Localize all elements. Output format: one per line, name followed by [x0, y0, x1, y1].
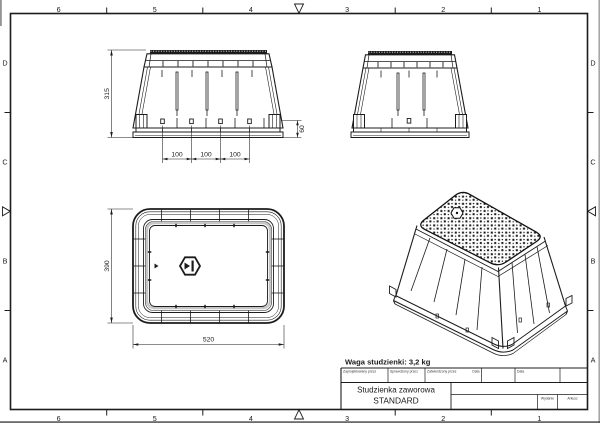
zone-label-top: 4: [249, 5, 253, 14]
front-view: 315 60 100 100: [104, 50, 306, 163]
front-base: [133, 128, 283, 138]
product-title-line1: Studzienka zaworowa: [357, 386, 435, 395]
side-rim: [363, 55, 457, 68]
date-label-1: Data: [472, 370, 479, 374]
dim-front-base-height: 60: [281, 121, 306, 138]
photo-edge-artifacts: [0, 0, 600, 423]
dim-text-315: 315: [104, 88, 111, 100]
isometric-view: [390, 192, 573, 355]
side-view: [351, 51, 469, 138]
product-title-line2: STANDARD: [373, 396, 418, 406]
iso-base: [394, 296, 568, 356]
sheet-label: Arkusz: [567, 397, 578, 401]
side-lid: [368, 51, 452, 55]
zone-label-right: B: [591, 257, 596, 266]
zone-label-top: 3: [345, 5, 349, 14]
designed-by-label: Zaprojektowany przez: [343, 370, 376, 374]
iso-lid: [421, 192, 540, 264]
drawing-sheet: 6 5 4 3 2 1 6 5 4 3 2 1 D C B A D C B A: [0, 0, 600, 423]
dim-text-60: 60: [299, 125, 306, 133]
plan-view: 390 520: [104, 209, 284, 349]
zone-label-top: 5: [153, 5, 157, 14]
date-label-2: Data: [517, 370, 524, 374]
approved-by-label: Zatwierdzony przez: [427, 370, 457, 374]
zone-ticks: [5, 8, 594, 416]
front-lid: [150, 50, 267, 54]
front-rim: [144, 54, 272, 67]
zone-label-left: A: [3, 356, 8, 365]
sheet-frame: 6 5 4 3 2 1 6 5 4 3 2 1 D C B A D C B A: [2, 4, 595, 423]
iso-holes: [436, 303, 550, 332]
checked-by-label: Sprawdzony przez: [390, 370, 418, 374]
zone-label-left: B: [3, 257, 8, 266]
zone-labels: 6 5 4 3 2 1 6 5 4 3 2 1 D C B A D C B A: [2, 5, 595, 423]
zone-label-top: 1: [537, 5, 541, 14]
dim-text-100: 100: [200, 151, 212, 158]
title-block: Waga studzienki: 3,2 kg Zaprojektowany p…: [341, 358, 588, 410]
dim-plan-width: 520: [133, 325, 284, 349]
iso-feet: [390, 286, 573, 349]
zone-label-right: C: [590, 158, 595, 167]
zone-label-left: C: [2, 158, 7, 167]
zone-label-right: A: [591, 356, 596, 365]
zone-label-top: 6: [57, 5, 61, 14]
zone-label-right: D: [590, 59, 595, 68]
centering-arrow-icons: [3, 4, 596, 419]
dim-text-100: 100: [171, 151, 183, 158]
dim-text-390: 390: [104, 260, 111, 272]
edition-label: Wydanie: [541, 397, 554, 401]
zone-label-top: 2: [441, 5, 445, 14]
dim-text-520: 520: [203, 337, 215, 344]
zone-label-left: D: [2, 59, 7, 68]
weight-note: Waga studzienki: 3,2 kg: [345, 358, 431, 367]
side-base: [351, 128, 469, 138]
dim-text-100: 100: [229, 151, 241, 158]
dim-plan-depth: 390: [104, 209, 133, 323]
iso-lid-emblem: [451, 208, 463, 218]
